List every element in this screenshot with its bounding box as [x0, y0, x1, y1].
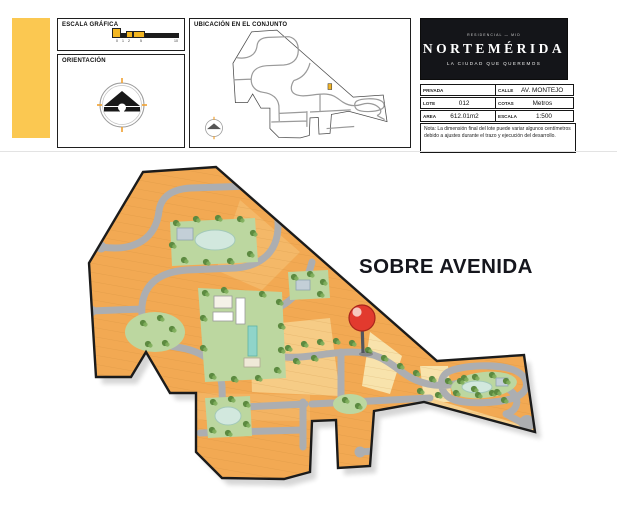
pool [248, 326, 257, 356]
map-annotation-sobre-avenida: SOBRE AVENIDA [359, 255, 533, 279]
plan-sheet: ESCALA GRÁFICA 0 1 2 5 10 ORIENTACIÓN [0, 0, 617, 525]
